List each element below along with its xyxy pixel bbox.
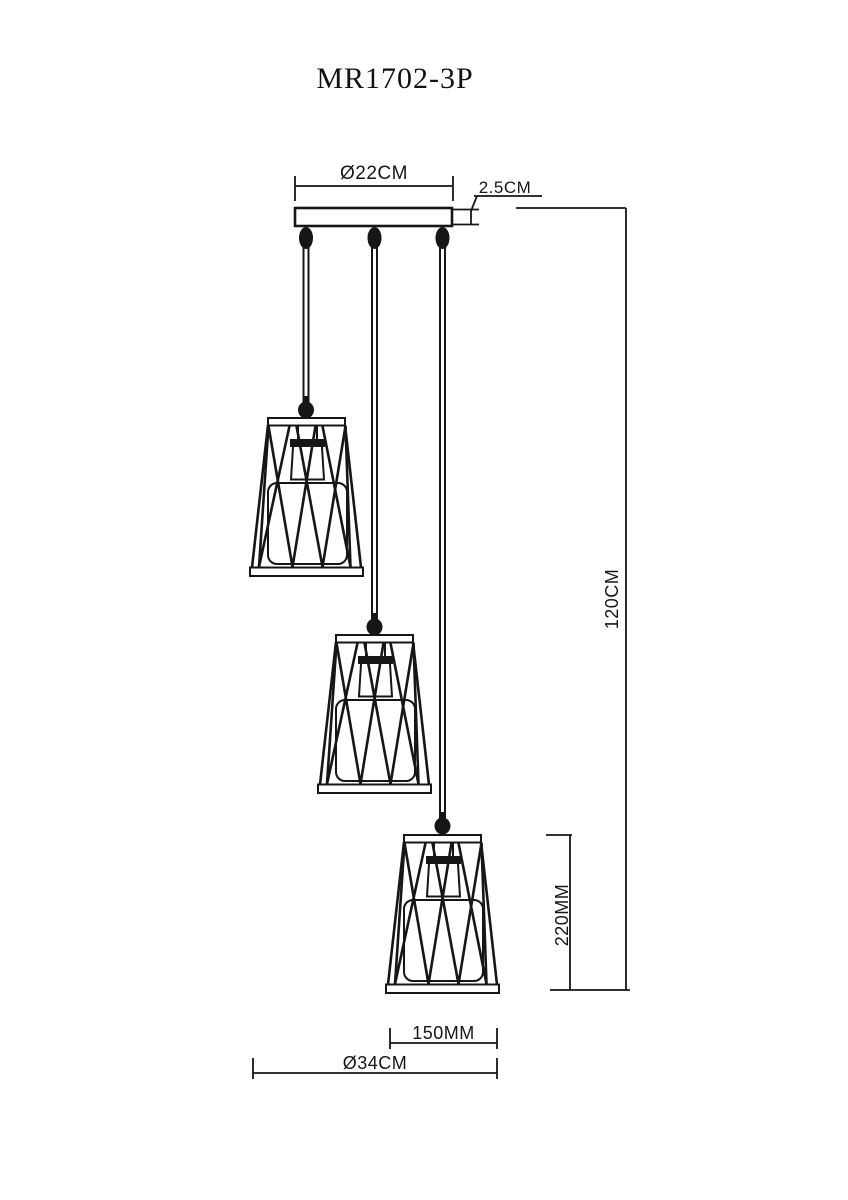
lamp-shade-3 <box>386 835 499 993</box>
product-dimension-diagram: MR1702-3P <box>0 0 848 1200</box>
shade-connector-2 <box>367 613 383 636</box>
shade-connector-3 <box>435 812 451 835</box>
dim-line-canopy-thickness <box>453 196 542 225</box>
cord-grip-1 <box>299 227 313 249</box>
dim-label-total-height: 120CM <box>601 559 623 639</box>
dim-label-canopy-diameter: Ø22CM <box>295 163 453 185</box>
dim-label-shade-width: 150MM <box>390 1023 497 1044</box>
cord-grips <box>299 227 450 249</box>
ceiling-canopy-plate <box>295 208 452 226</box>
dim-label-overall-diameter: Ø34CM <box>315 1053 435 1074</box>
cord-grip-3 <box>436 227 450 249</box>
cord-1 <box>304 247 309 404</box>
cord-2 <box>372 247 377 620</box>
cord-grip-2 <box>368 227 382 249</box>
shade-connector-1 <box>298 396 314 419</box>
dim-label-shade-height: 220MM <box>551 875 573 955</box>
cord-3 <box>440 247 445 818</box>
lamp-shade-1 <box>250 418 363 576</box>
dim-label-canopy-thickness: 2.5CM <box>470 178 540 198</box>
lamp-shade-2 <box>318 635 431 793</box>
